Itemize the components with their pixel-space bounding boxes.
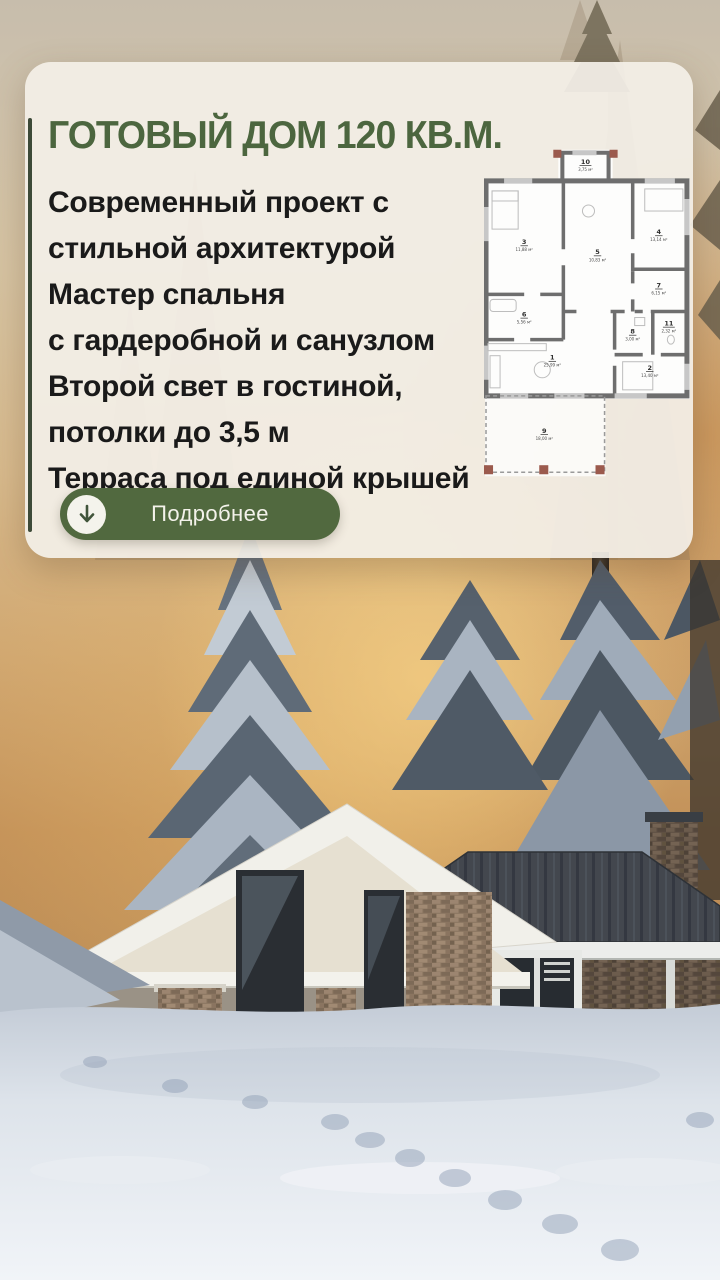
arrow-down-icon — [76, 503, 98, 525]
svg-text:25,99 м²: 25,99 м² — [544, 363, 562, 368]
svg-text:11,88 м²: 11,88 м² — [516, 247, 534, 252]
description-text: Современный проект с стильной архитектур… — [48, 180, 508, 502]
svg-text:5,56 м²: 5,56 м² — [517, 320, 532, 325]
svg-text:2,32 м²: 2,32 м² — [661, 329, 676, 334]
svg-text:13,14 м²: 13,14 м² — [650, 237, 668, 242]
svg-text:7: 7 — [657, 281, 662, 289]
arrow-circle — [67, 495, 106, 534]
svg-text:5: 5 — [595, 248, 600, 256]
promo-poster: ГОТОВЫЙ ДОМ 120 КВ.М. Современный проект… — [0, 0, 720, 1280]
svg-text:3,75 м²: 3,75 м² — [578, 167, 593, 172]
svg-text:10,83 м²: 10,83 м² — [589, 257, 607, 262]
accent-bar — [28, 118, 32, 532]
svg-text:18,00 м²: 18,00 м² — [536, 436, 554, 441]
svg-text:4: 4 — [657, 228, 662, 236]
svg-text:8: 8 — [630, 328, 635, 336]
svg-text:10: 10 — [581, 158, 591, 166]
svg-text:6: 6 — [522, 311, 527, 319]
page-title: ГОТОВЫЙ ДОМ 120 КВ.М. — [48, 114, 502, 158]
details-button[interactable]: Подробнее — [60, 488, 340, 540]
svg-text:9: 9 — [542, 427, 547, 435]
svg-text:2: 2 — [647, 364, 652, 372]
details-button-label: Подробнее — [106, 501, 340, 527]
floor-plan: 125,99 м²213,40 м²311,88 м²413,14 м²510,… — [484, 148, 700, 478]
svg-text:11: 11 — [664, 320, 674, 328]
snow-ground — [0, 1004, 720, 1280]
svg-text:6,15 м²: 6,15 м² — [651, 290, 666, 295]
svg-text:3,00 м²: 3,00 м² — [625, 337, 640, 342]
svg-text:1: 1 — [550, 354, 555, 362]
svg-text:13,40 м²: 13,40 м² — [641, 373, 659, 378]
svg-text:3: 3 — [522, 238, 527, 246]
